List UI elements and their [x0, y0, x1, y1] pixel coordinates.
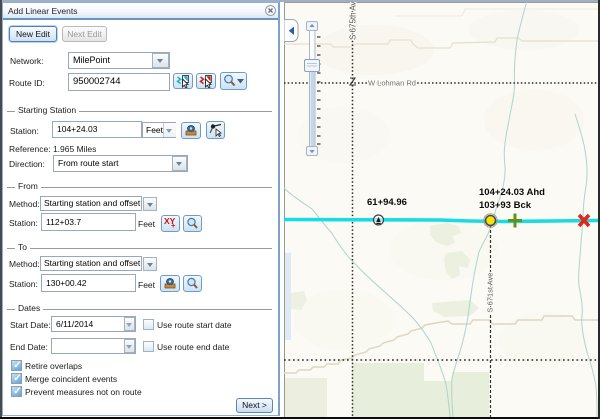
svg-text:S 675th Ave: S 675th Ave [349, 0, 358, 40]
svg-text:61+94.96: 61+94.96 [367, 197, 407, 208]
svg-text:104+24.03 Ahd: 104+24.03 Ahd [479, 187, 545, 198]
svg-text:W Lohman Rd: W Lohman Rd [368, 79, 416, 88]
svg-text:103+93 Bck: 103+93 Bck [479, 200, 532, 211]
svg-text:S 671st Ave: S 671st Ave [486, 273, 495, 313]
